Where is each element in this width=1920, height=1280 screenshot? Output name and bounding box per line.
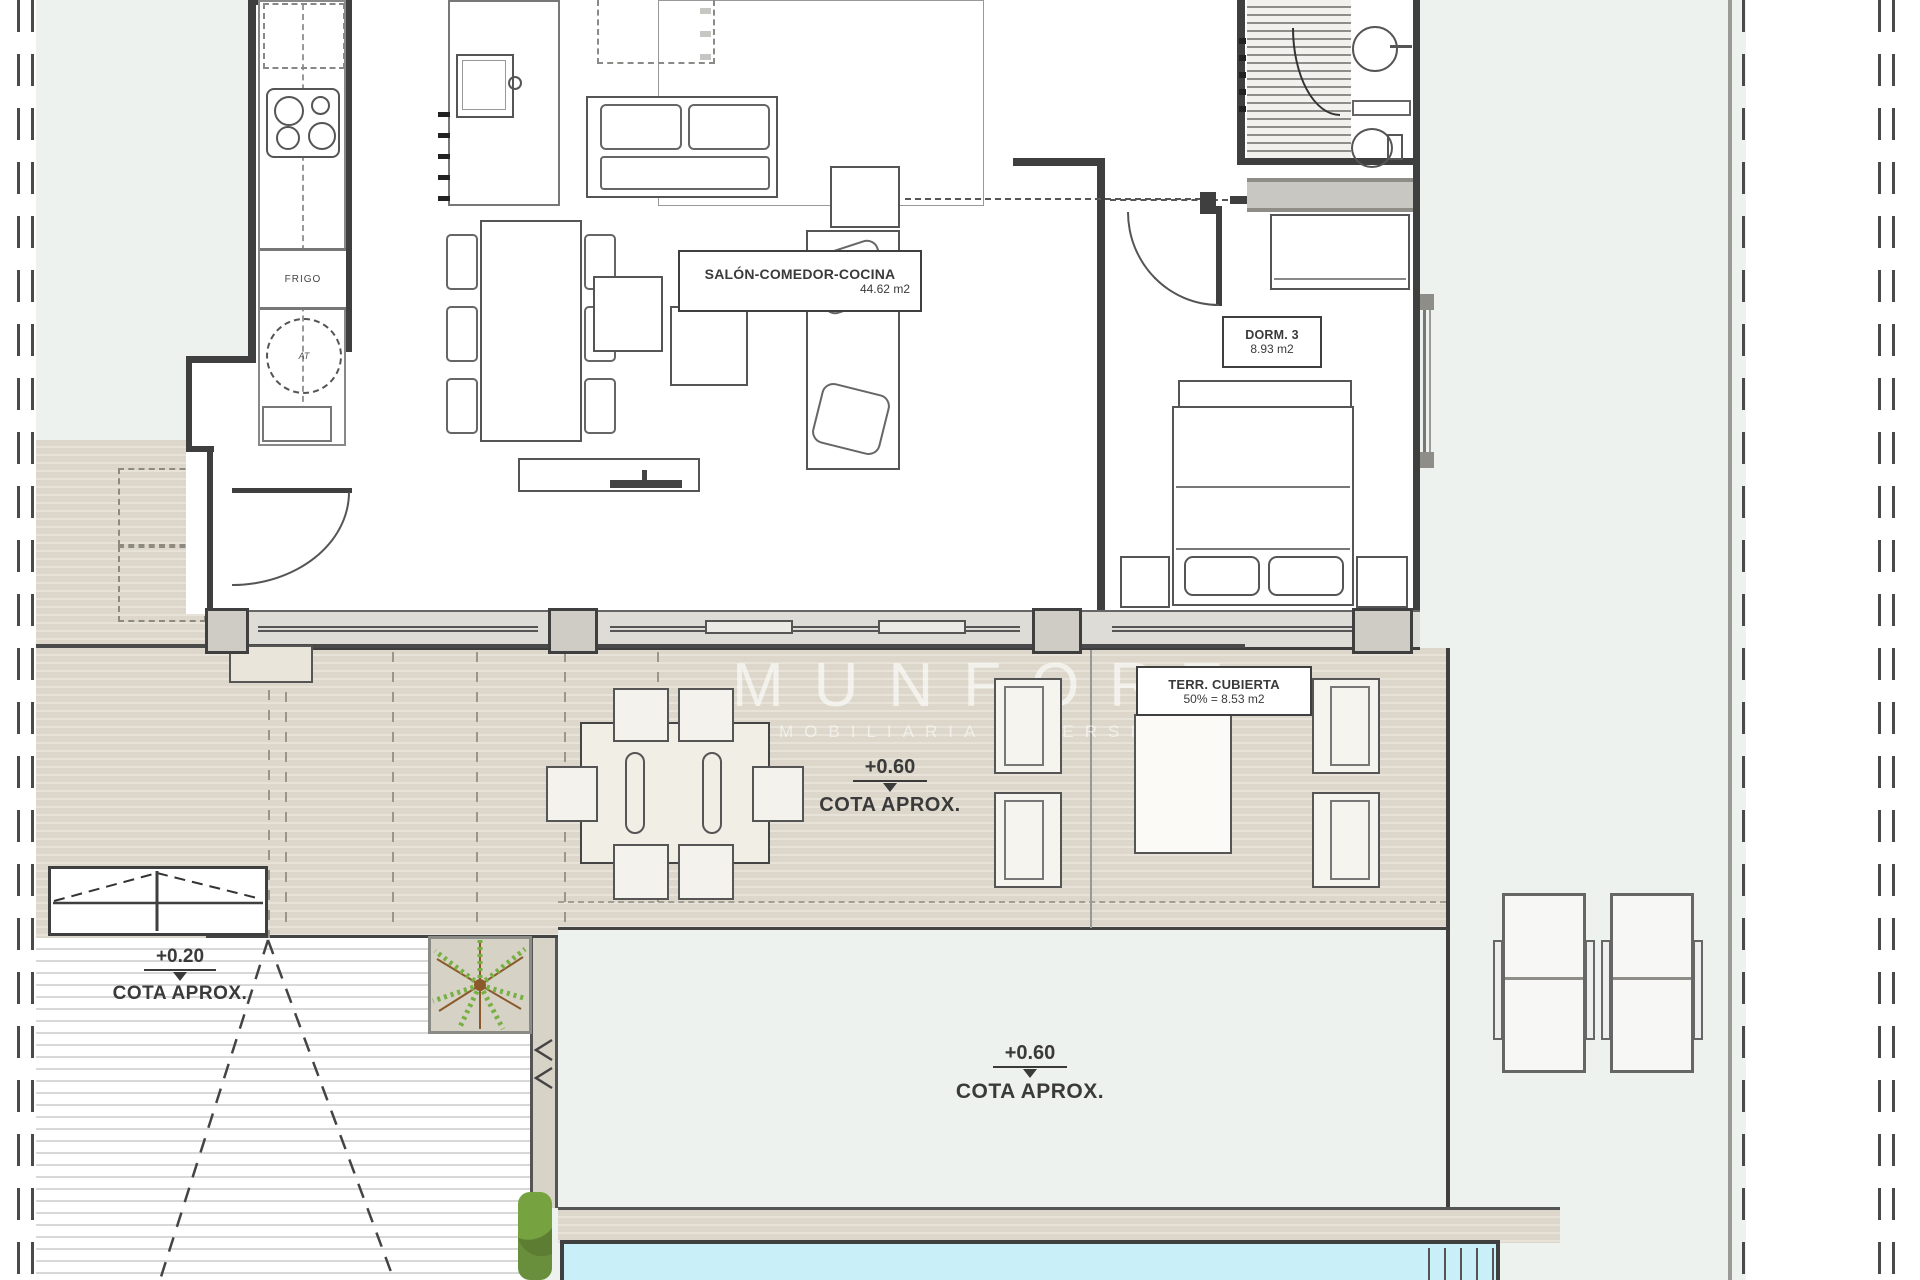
wall <box>1413 0 1420 648</box>
side-table <box>830 166 900 228</box>
toilet-cistern <box>1387 134 1403 160</box>
level-arrow-icon <box>883 783 897 792</box>
boundary-dash-line <box>1878 0 1881 1280</box>
side-window-frame <box>1420 452 1434 468</box>
lounger-armrest <box>1693 940 1703 1040</box>
terrace-armchair-seat <box>1330 686 1370 766</box>
wall <box>1097 158 1105 648</box>
bed-headboard <box>1178 380 1352 408</box>
boundary-dash-line <box>17 0 20 1280</box>
vent-mark <box>700 31 711 37</box>
terrace-chair <box>613 688 669 742</box>
tree-planter <box>428 936 532 1034</box>
washer: AT <box>266 318 342 394</box>
tree-icon <box>431 939 529 1031</box>
living-room-area: 44.62 m2 <box>680 282 920 296</box>
terrace-joint-dashed <box>558 901 1446 903</box>
terrace-chair <box>546 766 598 822</box>
wall <box>248 0 256 362</box>
wall-double <box>1247 178 1413 212</box>
level-arrow-icon <box>173 972 187 981</box>
terrace-level-value: +0.60 <box>853 756 928 782</box>
dining-chair <box>446 234 478 290</box>
terrace-chair <box>678 688 734 742</box>
pool-deck-band <box>558 1207 1560 1243</box>
floor-plan: MUNFORT INMOBILIARIA INVERSION FRIGO AT <box>0 0 1920 1280</box>
side-window-glazing <box>1423 310 1426 452</box>
fridge: FRIGO <box>260 248 346 310</box>
dining-chair <box>446 378 478 434</box>
upper-cabinet-dashed <box>263 3 345 69</box>
terrace-armchair-seat <box>1330 800 1370 880</box>
island-ticks <box>438 112 450 206</box>
deck-joint <box>268 690 270 938</box>
faucet <box>508 76 522 90</box>
hall-dashed-line <box>905 198 1211 200</box>
level-arrow-icon <box>1023 1069 1037 1078</box>
dining-table <box>480 220 582 442</box>
covered-terrace-label: TERR. CUBIERTA 50% = 8.53 m2 <box>1136 666 1312 716</box>
garden-level-label: +0.60 COTA APROX. <box>930 1042 1130 1104</box>
terrace-table-slat <box>625 752 645 834</box>
garden-level-value: +0.60 <box>993 1042 1068 1068</box>
terrace-chair <box>613 844 669 900</box>
ceiling-dashed-rect <box>597 0 715 64</box>
terrace-coffee-table <box>1134 714 1232 854</box>
bath-sink <box>1352 26 1398 72</box>
sofa-cushion <box>600 104 682 150</box>
boundary-solid-line <box>1728 0 1732 1280</box>
window-glazing <box>1112 626 1352 632</box>
vent-mark <box>700 54 711 60</box>
pillow <box>1184 556 1260 596</box>
nightstand <box>1120 556 1170 608</box>
boundary-dash-line <box>31 0 34 1280</box>
facade-pier <box>1352 608 1413 654</box>
wall <box>186 356 256 363</box>
sink-inner <box>462 60 506 110</box>
gate-braces <box>51 869 265 933</box>
facade-pier <box>548 608 598 654</box>
sofa-seat <box>600 156 770 190</box>
wall-stub <box>1200 192 1216 214</box>
bedroom-name: DORM. 3 <box>1224 328 1320 342</box>
bedroom-label: DORM. 3 8.93 m2 <box>1222 316 1322 368</box>
terrace-table <box>580 722 770 864</box>
living-room-name: SALÓN-COMEDOR-COCINA <box>680 266 920 282</box>
terrace-chair <box>678 844 734 900</box>
wall <box>345 0 352 352</box>
insulation-dots <box>1239 38 1246 122</box>
bedroom-area: 8.93 m2 <box>1224 342 1320 356</box>
slider-rail <box>705 620 793 634</box>
facade-pier <box>205 608 249 654</box>
boundary-dash-line <box>1742 0 1745 1280</box>
lounger-armrest <box>1601 940 1611 1040</box>
hob-burner <box>308 122 336 150</box>
coffee-table-square <box>670 306 748 386</box>
entry-level-value: +0.20 <box>144 946 216 971</box>
sofa-cushion <box>688 104 770 150</box>
wardrobe-line <box>1274 278 1406 280</box>
dining-chair <box>584 378 616 434</box>
sun-lounger <box>1502 893 1586 1073</box>
sun-lounger <box>1610 893 1694 1073</box>
deck-joint <box>285 652 287 932</box>
hob-burner <box>276 126 300 150</box>
lounger-fold-line <box>1505 977 1583 980</box>
hob-burner <box>274 96 304 126</box>
deck-joint <box>392 652 394 932</box>
kitchen-low-cabinet <box>262 406 332 442</box>
lounger-armrest <box>1585 940 1595 1040</box>
terrace-armchair-seat <box>1004 800 1044 880</box>
boundary-dash-line <box>1892 0 1895 1280</box>
deck-joint <box>476 652 478 932</box>
side-window-frame <box>1420 294 1434 310</box>
coffee-table-square <box>593 276 663 352</box>
wall <box>207 446 213 614</box>
terrace-armchair-seat <box>1004 686 1044 766</box>
garden-right-wall <box>1446 930 1450 1210</box>
nightstand <box>1356 556 1408 608</box>
bed-line <box>1176 548 1350 550</box>
hedge <box>518 1192 552 1280</box>
wall-arrow-icon <box>532 1066 556 1090</box>
wall-arrow-icon <box>532 1038 556 1062</box>
window-glazing <box>258 626 538 632</box>
vent-mark <box>700 8 711 14</box>
lounger-fold-line <box>1613 977 1691 980</box>
terrace-table-slat <box>702 752 722 834</box>
terrace-level-label: +0.60 COTA APROX. <box>790 756 990 817</box>
gate <box>48 866 268 936</box>
watermark-subtitle: INMOBILIARIA INVERSION <box>740 722 1194 742</box>
living-room-label: SALÓN-COMEDOR-COCINA 44.62 m2 <box>678 250 922 312</box>
tv-stand <box>642 470 647 480</box>
tv <box>610 480 682 488</box>
dining-chair <box>446 306 478 362</box>
wall <box>1013 158 1105 166</box>
garden-level-caption: COTA APROX. <box>930 1080 1130 1104</box>
slider-rail <box>878 620 966 634</box>
bed-line <box>1176 486 1350 488</box>
pool <box>560 1240 1500 1280</box>
washer-label: AT <box>299 351 310 361</box>
hob-burner <box>311 96 330 115</box>
entry-level-caption: COTA APROX. <box>80 983 280 1005</box>
pool-steps <box>1414 1248 1496 1280</box>
bath-shelf <box>1352 100 1411 116</box>
fridge-label: FRIGO <box>285 274 322 285</box>
covered-terrace-area: 50% = 8.53 m2 <box>1138 692 1310 706</box>
wall <box>186 356 192 452</box>
terrace-level-caption: COTA APROX. <box>790 794 990 817</box>
entry-level-label: +0.20 COTA APROX. <box>80 946 280 1005</box>
bath-faucet-line <box>1390 45 1412 48</box>
pillow <box>1268 556 1344 596</box>
lounger-armrest <box>1493 940 1503 1040</box>
covered-terrace-name: TERR. CUBIERTA <box>1138 677 1310 692</box>
facade-pier <box>1032 608 1082 654</box>
side-window-glazing <box>1429 310 1431 452</box>
